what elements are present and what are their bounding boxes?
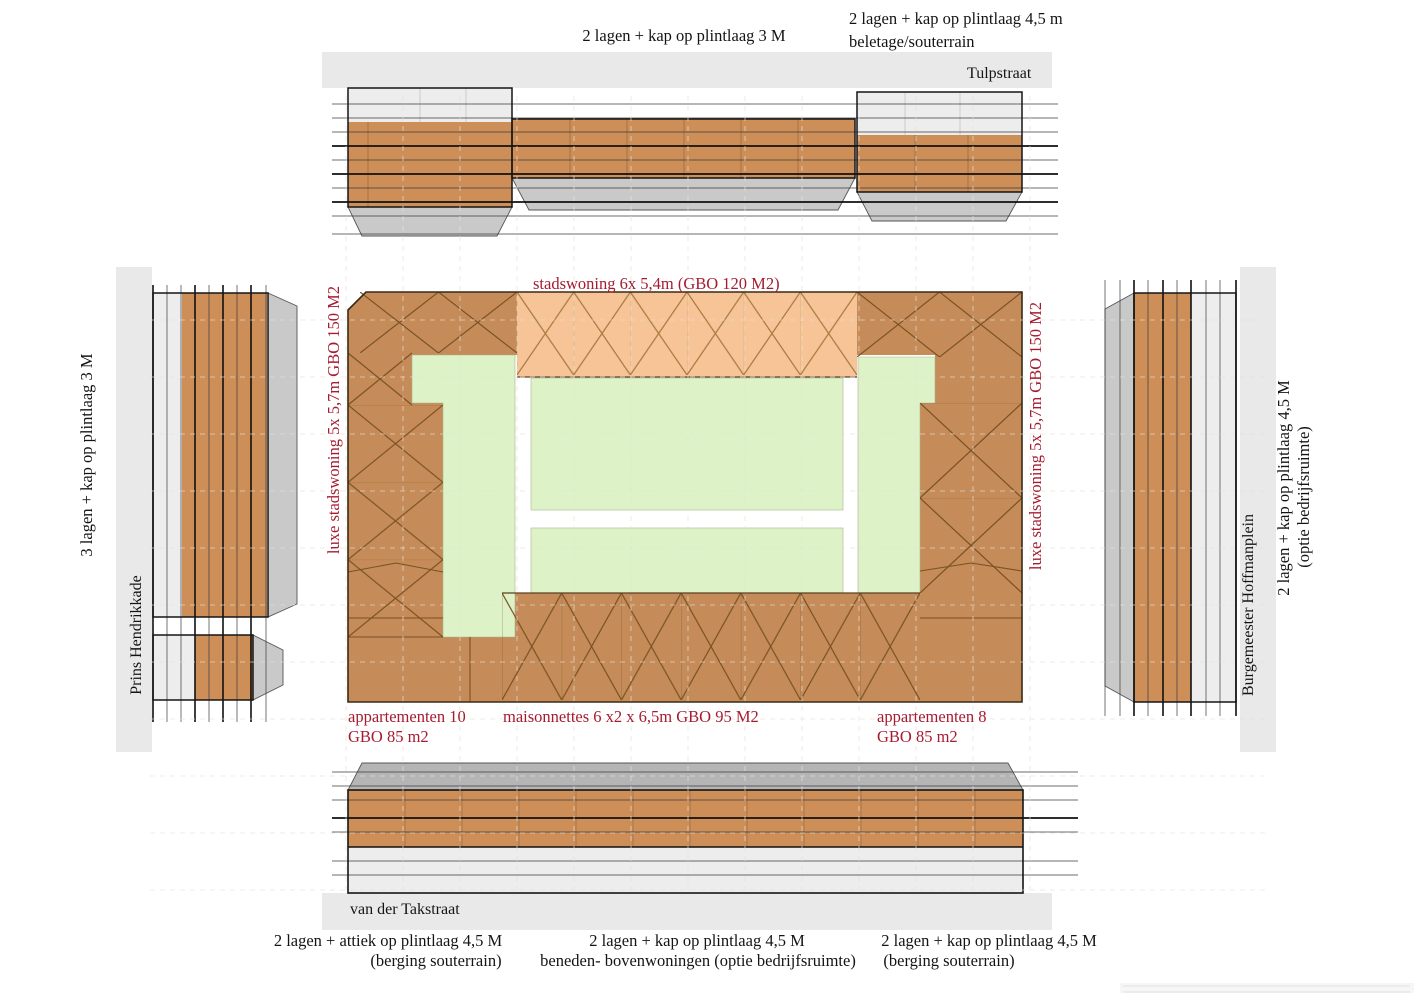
label-bottom-center-line1: 2 lagen + kap op plintlaag 4,5 M — [589, 931, 805, 950]
label-top-right-line1: 2 lagen + kap op plintlaag 4,5 m — [849, 9, 1063, 28]
label-appartementen8-line2: GBO 85 m2 — [877, 727, 958, 746]
label-luxe-stadswoning-right: luxe stadswoning 5x 5,7m GBO 150 M2 — [1026, 302, 1045, 570]
label-stadswoning: stadswoning 6x 5,4m (GBO 120 M2) — [533, 274, 780, 293]
label-bottom-center-line2: beneden- bovenwoningen (optie bedrijfsru… — [540, 951, 856, 970]
plan-block — [348, 292, 1022, 702]
label-top-center: 2 lagen + kap op plintlaag 3 M — [582, 26, 785, 45]
label-bottom-left-line1: 2 lagen + attiek op plintlaag 4,5 M — [274, 931, 503, 950]
street-label-van-der-takstraat: van der Takstraat — [350, 901, 460, 918]
label-right-elevation-line2: (optie bedrijfsruimte) — [1294, 426, 1313, 568]
label-bottom-right-line2: (berging souterrain) — [883, 951, 1014, 970]
label-appartementen10-line2: GBO 85 m2 — [348, 727, 429, 746]
elevation-right — [1105, 280, 1236, 716]
label-bottom-right-line1: 2 lagen + kap op plintlaag 4,5 M — [881, 931, 1097, 950]
label-appartementen8-line1: appartementen 8 — [877, 707, 987, 726]
street-band-top — [322, 52, 1052, 88]
label-top-right-line2: beletage/souterrain — [849, 32, 975, 51]
label-appartementen10-line1: appartementen 10 — [348, 707, 466, 726]
label-luxe-stadswoning-left: luxe stadswoning 5x 5,7m GBO 150 M2 — [324, 286, 343, 554]
site-plan-drawing: 2 lagen + kap op plintlaag 3 M 2 lagen +… — [0, 0, 1414, 1000]
label-right-elevation-line1: 2 lagen + kap op plintlaag 4,5 M — [1274, 380, 1293, 596]
label-maisonnettes: maisonnettes 6 x2 x 6,5m GBO 95 M2 — [503, 707, 759, 726]
elevation-bottom — [332, 763, 1078, 893]
site-plan-page: 2 lagen + kap op plintlaag 3 M 2 lagen +… — [0, 0, 1414, 1000]
top-crop-mask — [840, 0, 1105, 10]
street-label-prins-hendrikkade: Prins Hendrikkade — [128, 575, 145, 695]
elevation-top — [332, 88, 1058, 236]
garden-center — [531, 378, 843, 510]
street-label-tulpstraat: Tulpstraat — [967, 65, 1032, 82]
label-bottom-left-line2: (berging souterrain) — [370, 951, 501, 970]
elevation-left — [153, 285, 297, 722]
bottom-right-strip — [1120, 983, 1414, 993]
label-left-elevation: 3 lagen + kap op plintlaag 3 M — [77, 353, 96, 556]
garden-lower — [531, 528, 843, 593]
street-label-burgemeester-hoffmanplein: Burgemeester Hoffmanplein — [1240, 514, 1257, 696]
